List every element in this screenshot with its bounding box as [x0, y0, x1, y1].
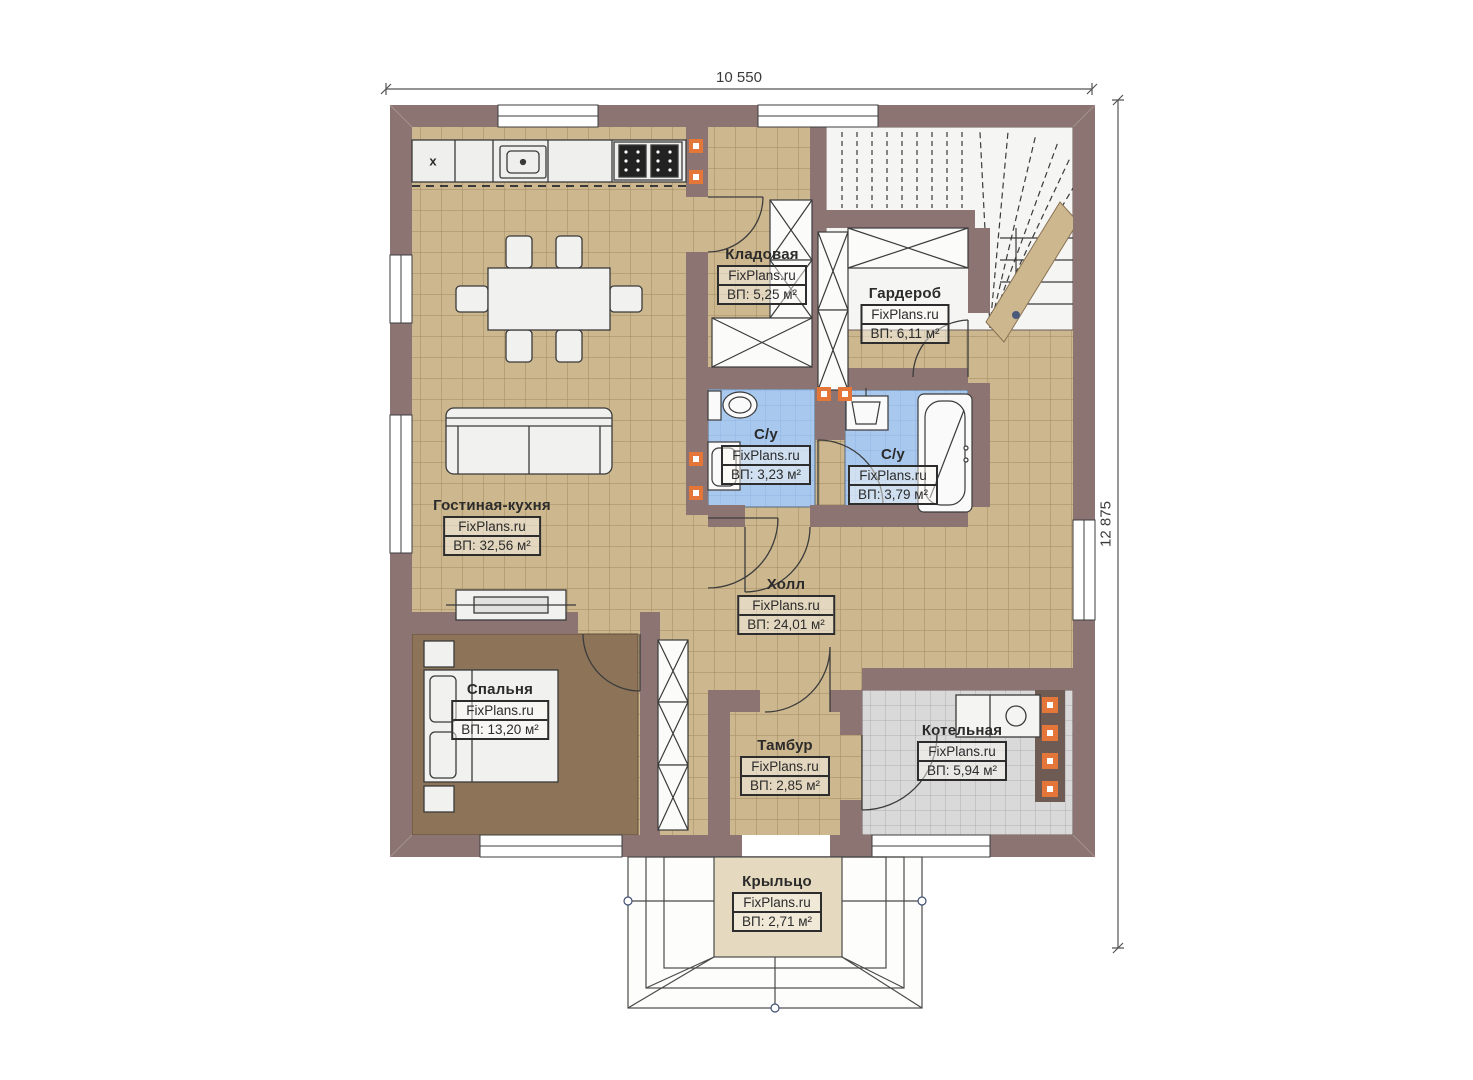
watermark-text: FixPlans.ru [919, 743, 1005, 760]
room-info-box: FixPlans.ru ВП: 5,25 м² [717, 265, 807, 305]
room-label-bathroom-2: С/у FixPlans.ru ВП: 3,79 м² [848, 446, 938, 505]
room-area: ВП: 32,56 м² [445, 535, 539, 554]
window-living-left-2 [390, 415, 412, 553]
room-info-box: FixPlans.ru ВП: 5,94 м² [917, 741, 1007, 781]
room-label-bedroom: Спальня FixPlans.ru ВП: 13,20 м² [451, 681, 549, 740]
dining-table [488, 268, 610, 330]
watermark-text: FixPlans.ru [719, 267, 805, 284]
closet-wardrobe-1 [818, 232, 848, 310]
window-bedroom-bottom [480, 835, 622, 857]
room-label-vestibule: Тамбур FixPlans.ru ВП: 2,85 м² [740, 737, 830, 796]
room-label-boiler: Котельная FixPlans.ru ВП: 5,94 м² [917, 722, 1007, 781]
wall-wardrobe-right-top [968, 228, 990, 313]
wall-bath-bottom-left [708, 505, 745, 527]
vent-marker [689, 139, 703, 153]
window-stairs-top [758, 105, 878, 127]
room-info-box: FixPlans.ru ВП: 13,20 м² [451, 700, 549, 740]
wall-exterior-top [390, 105, 1095, 127]
room-label-porch: Крыльцо FixPlans.ru ВП: 2,71 м² [732, 873, 822, 932]
room-info-box: FixPlans.ru ВП: 32,56 м² [443, 516, 541, 556]
wall-vestibule-left [708, 690, 730, 835]
closet-wardrobe-2 [818, 310, 848, 390]
chair [456, 286, 488, 312]
wall-bedroom-right [640, 612, 660, 835]
chair [610, 286, 642, 312]
sofa [446, 408, 612, 474]
chair [556, 236, 582, 268]
window-living-left-1 [390, 255, 412, 323]
closet-bedroom-2 [658, 702, 688, 765]
room-name: С/у [721, 426, 811, 443]
floor-plan: 10 550 12 875 x Кладовая FixPlans.ru ВП:… [0, 0, 1473, 1080]
room-area: ВП: 6,11 м² [862, 323, 947, 342]
room-name: Гостиная-кухня [433, 497, 551, 514]
nightstand [424, 786, 454, 812]
room-name: Котельная [917, 722, 1007, 739]
vent-marker [689, 486, 703, 500]
room-name: С/у [848, 446, 938, 463]
chair [556, 330, 582, 362]
room-area: ВП: 24,01 м² [739, 614, 833, 633]
kitchen-sink-icon [500, 146, 546, 178]
room-name: Кладовая [717, 246, 807, 263]
room-info-box: FixPlans.ru ВП: 3,79 м² [848, 465, 938, 505]
tv-stand [446, 590, 576, 620]
room-info-box: FixPlans.ru ВП: 2,85 м² [740, 756, 830, 796]
room-info-box: FixPlans.ru ВП: 24,01 м² [737, 595, 835, 635]
window-hall-right [1073, 520, 1095, 620]
wall-vestibule-right-bottom [840, 800, 862, 835]
window-boiler-bottom [872, 835, 990, 857]
room-area: ВП: 2,71 м² [734, 911, 820, 930]
dimension-width-label: 10 550 [716, 69, 762, 86]
kitchen-x-marker: x [429, 154, 436, 169]
wall-exterior-right [1073, 105, 1095, 857]
radiator-marker [1042, 781, 1058, 797]
nightstand [424, 641, 454, 667]
stair-newel-dot [1012, 311, 1020, 319]
room-name: Спальня [451, 681, 549, 698]
room-label-pantry: Кладовая FixPlans.ru ВП: 5,25 м² [717, 246, 807, 305]
radiator-marker [1042, 697, 1058, 713]
watermark-text: FixPlans.ru [445, 518, 539, 535]
watermark-text: FixPlans.ru [723, 447, 809, 464]
room-name: Холл [737, 576, 835, 593]
kitchen-counter [412, 140, 686, 186]
wall-boiler-top [862, 668, 1073, 690]
room-area: ВП: 3,23 м² [723, 464, 809, 483]
room-label-living-kitchen: Гостиная-кухня FixPlans.ru ВП: 32,56 м² [433, 497, 551, 556]
room-info-box: FixPlans.ru ВП: 2,71 м² [732, 892, 822, 932]
room-area: ВП: 3,79 м² [850, 484, 936, 503]
chair [506, 330, 532, 362]
watermark-text: FixPlans.ru [742, 758, 828, 775]
vent-marker [689, 170, 703, 184]
watermark-text: FixPlans.ru [850, 467, 936, 484]
toilet-icon [708, 391, 757, 420]
room-area: ВП: 2,85 м² [742, 775, 828, 794]
room-label-hall: Холл FixPlans.ru ВП: 24,01 м² [737, 576, 835, 635]
room-name: Тамбур [740, 737, 830, 754]
room-area: ВП: 5,94 м² [919, 760, 1005, 779]
radiator-marker [1042, 753, 1058, 769]
chair [506, 236, 532, 268]
room-area: ВП: 13,20 м² [453, 719, 547, 738]
vent-marker [838, 387, 852, 401]
wall-stairs-wardrobe [826, 210, 975, 228]
room-label-bathroom-1: С/у FixPlans.ru ВП: 3,23 м² [721, 426, 811, 485]
closet-bedroom-3 [658, 765, 688, 830]
room-info-box: FixPlans.ru ВП: 6,11 м² [860, 304, 949, 344]
wall-bath1-top [686, 367, 816, 389]
room-label-wardrobe: Гардероб FixPlans.ru ВП: 6,11 м² [860, 285, 949, 344]
room-name: Крыльцо [732, 873, 822, 890]
closet-bedroom-1 [658, 640, 688, 702]
vent-marker [689, 452, 703, 466]
watermark-text: FixPlans.ru [453, 702, 547, 719]
wall-vestibule-right-top [840, 690, 862, 735]
radiator-marker [1042, 725, 1058, 741]
wall-pantry-left-top [686, 127, 708, 197]
closet-pantry-3 [712, 318, 812, 367]
vent-marker [817, 387, 831, 401]
wall-vestibule-top-left [730, 690, 760, 712]
stove-icon [614, 142, 682, 180]
watermark-text: FixPlans.ru [734, 894, 820, 911]
window-kitchen-top [498, 105, 598, 127]
entry-opening [742, 835, 830, 857]
closet-wardrobe-top [848, 228, 968, 268]
room-name: Гардероб [860, 285, 949, 302]
watermark-text: FixPlans.ru [862, 306, 947, 323]
room-info-box: FixPlans.ru ВП: 3,23 м² [721, 445, 811, 485]
wall-bath2-top [845, 368, 968, 390]
dimension-height-label: 12 875 [1098, 501, 1115, 547]
room-area: ВП: 5,25 м² [719, 284, 805, 303]
watermark-text: FixPlans.ru [739, 597, 833, 614]
